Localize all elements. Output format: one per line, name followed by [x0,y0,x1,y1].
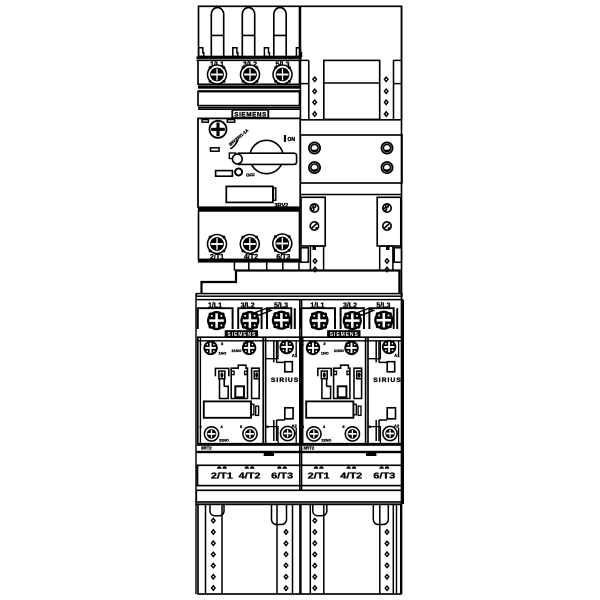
svg-text:21NO: 21NO [232,349,242,353]
svg-text:21NO: 21NO [334,349,344,353]
svg-text:22NO: 22NO [321,439,331,443]
svg-text:1/L1: 1/L1 [310,302,324,309]
svg-text:22NO: 22NO [219,439,229,443]
svg-text:4/T2: 4/T2 [239,470,261,480]
svg-text:2/T1: 2/T1 [211,470,233,480]
svg-text:1NO: 1NO [219,352,227,356]
svg-text:1NO: 1NO [321,352,329,356]
svg-text:3RT2: 3RT2 [303,445,314,450]
svg-text:SIRIUS: SIRIUS [271,377,299,384]
svg-text:6/T3: 6/T3 [373,470,395,480]
svg-text:3/L2: 3/L2 [343,302,357,309]
svg-text:OFF: OFF [246,172,255,177]
svg-text:1/L1: 1/L1 [208,302,222,309]
svg-text:4/T2: 4/T2 [340,470,362,480]
svg-text:5/L3: 5/L3 [274,302,288,309]
svg-text:3/L2: 3/L2 [241,302,255,309]
svg-text:6/T3: 6/T3 [271,470,293,480]
svg-text:A1: A1 [394,353,400,358]
svg-text:SIRIUS: SIRIUS [373,377,401,384]
svg-text:5/L3: 5/L3 [376,302,390,309]
svg-text:2/T1: 2/T1 [308,470,330,480]
svg-text:ON: ON [288,137,296,143]
svg-text:A1: A1 [292,353,298,358]
svg-text:3RT2: 3RT2 [201,445,212,450]
